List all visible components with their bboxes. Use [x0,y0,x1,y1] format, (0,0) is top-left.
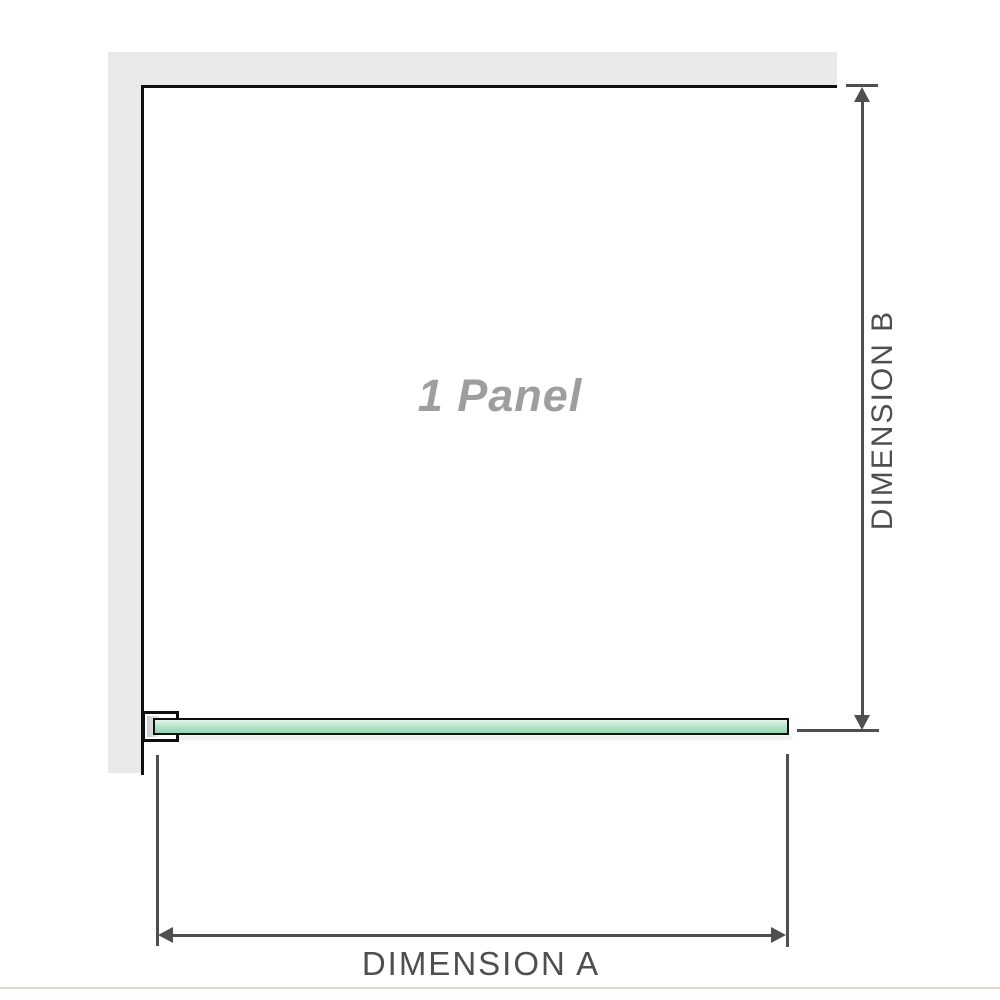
dimension-a-ext-line-left [156,755,159,946]
dimension-b-label: DIMENSION B [865,270,901,570]
arrow-down-icon [854,715,870,730]
wall-edge-left-line [141,85,144,775]
dimension-a-ext-line-right [786,754,789,947]
glass-panel-shadow [150,736,792,740]
panel-count-label: 1 Panel [350,368,650,424]
wall-top-strip [108,52,837,85]
wall-left-strip [108,52,141,773]
wall-edge-top-line [141,85,837,88]
arrow-right-icon [771,927,786,943]
arrow-left-icon [158,927,173,943]
dimension-b-line [861,96,864,720]
arrow-up-icon [854,87,870,102]
diagram-canvas: 1 Panel DIMENSION B DIMENSION A [0,0,1000,1000]
dimension-a-line [167,934,777,937]
image-baseline [0,987,1000,989]
glass-panel-top-view [153,718,789,735]
dimension-a-label: DIMENSION A [331,945,631,985]
